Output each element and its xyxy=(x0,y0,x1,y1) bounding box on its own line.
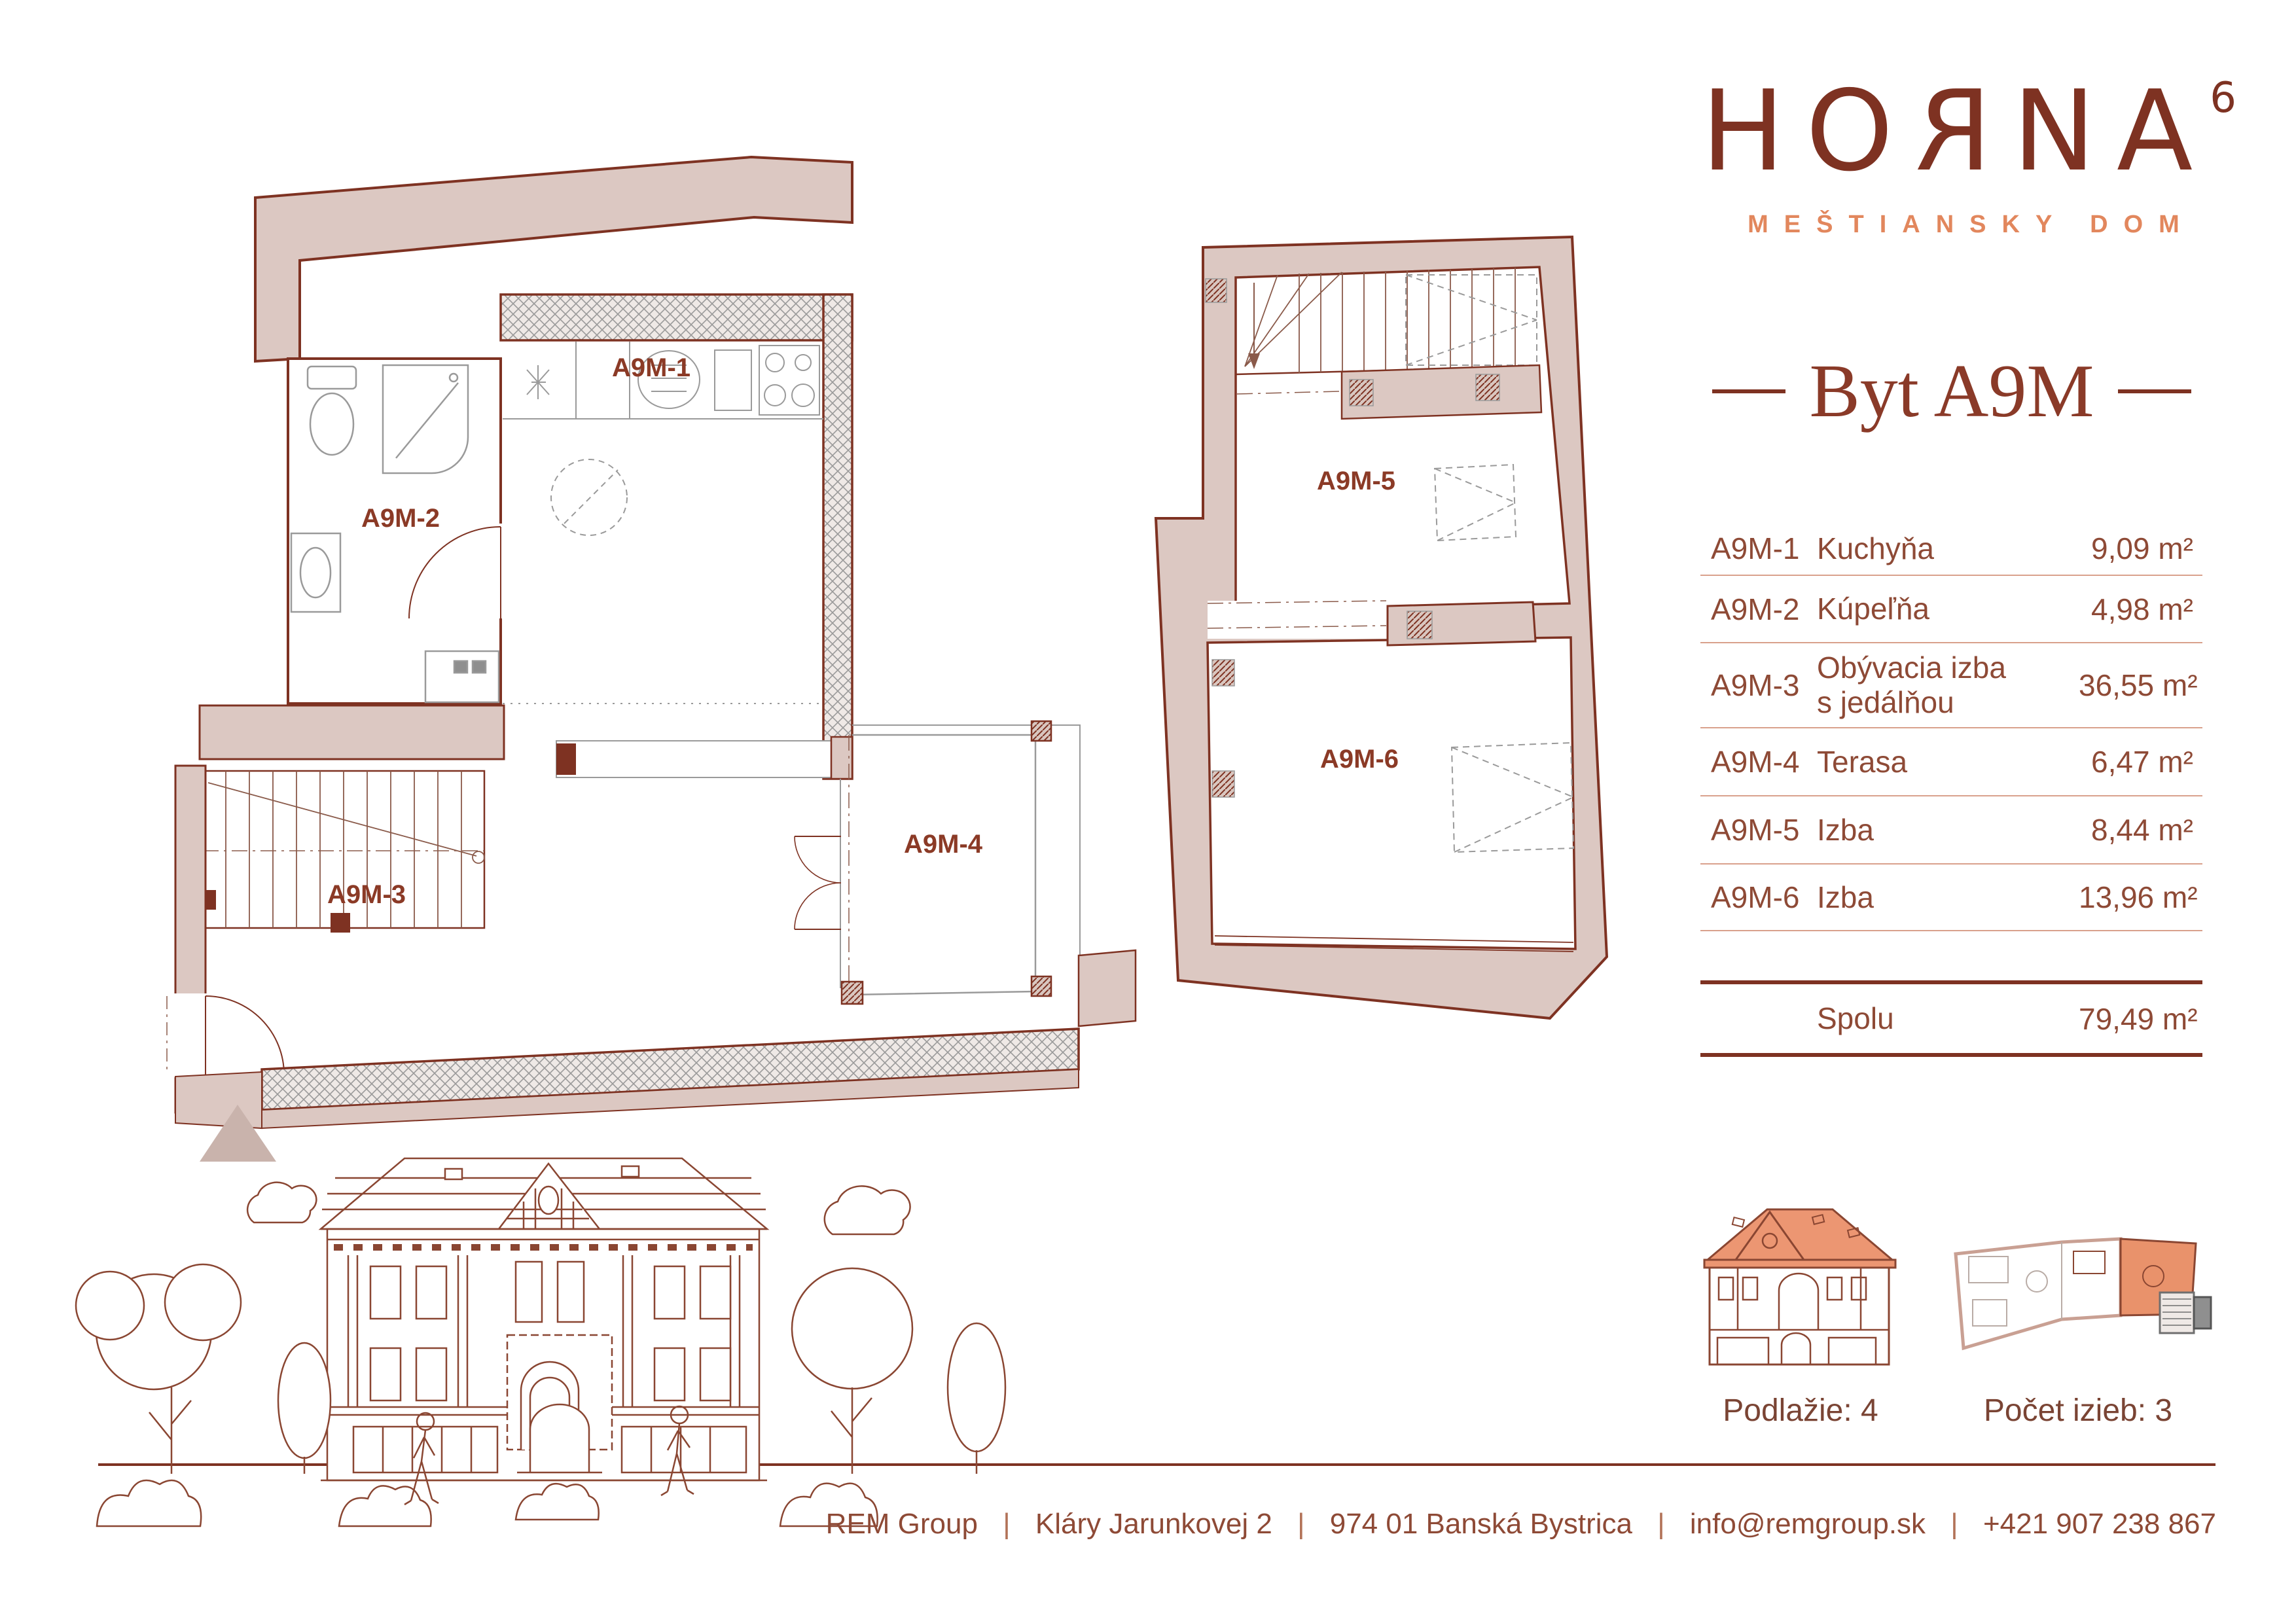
room-label-a9m1: A9M-1 xyxy=(612,353,691,382)
logo-letter: O xyxy=(1806,76,1893,187)
footer-separator: | xyxy=(1657,1508,1664,1540)
room-name: Terasa xyxy=(1817,745,2079,779)
floor-plan-main: A9M-1 A9M-2 A9M-3 A9M-4 xyxy=(167,157,1136,1162)
building-illustration xyxy=(76,1158,1005,1526)
kitchen-fixtures xyxy=(503,342,823,704)
room-label-a9m5: A9M-5 xyxy=(1317,467,1395,495)
footer-contact: REM Group | Kláry Jarunkovej 2 | 974 01 … xyxy=(826,1508,2216,1541)
room-area: 13,96 m² xyxy=(2079,880,2207,915)
bathroom-fixtures xyxy=(291,365,499,702)
brochure-page: A9M-1 A9M-2 A9M-3 A9M-4 xyxy=(0,0,2296,1623)
brand-logo: H O R N A 6 MEŠTIANSKY DOM xyxy=(1702,76,2225,239)
table-row: A9M-6 Izba 13,96 m² xyxy=(1700,865,2202,931)
unit-position-icon xyxy=(1956,1239,2211,1348)
logo-letter: N xyxy=(2013,76,2096,187)
footer-city: 974 01 Banská Bystrica xyxy=(1330,1508,1632,1540)
room-area: 6,47 m² xyxy=(2079,744,2202,779)
terrace xyxy=(795,721,1136,1026)
staircase-upper xyxy=(1236,268,1541,419)
logo-subtitle: MEŠTIANSKY DOM xyxy=(1702,211,2225,239)
staircase-main xyxy=(196,771,484,933)
floor-location-icon xyxy=(1704,1209,1895,1364)
room-area: 4,98 m² xyxy=(2079,592,2202,627)
footer-separator: | xyxy=(1003,1508,1010,1540)
footer-email[interactable]: info@remgroup.sk xyxy=(1690,1508,1926,1540)
room-name: Kúpeľňa xyxy=(1817,592,2079,626)
room-code: A9M-2 xyxy=(1700,592,1817,627)
room-area-table: A9M-1 Kuchyňa 9,09 m² A9M-2 Kúpeľňa 4,98… xyxy=(1700,522,2202,1057)
total-label: Spolu xyxy=(1817,1001,2079,1036)
room-name: Kuchyňa xyxy=(1817,531,2079,566)
room-area: 36,55 m² xyxy=(2079,668,2207,703)
table-total-row: Spolu 79,49 m² xyxy=(1700,980,2202,1057)
footer-company: REM Group xyxy=(826,1508,978,1540)
total-area: 79,49 m² xyxy=(2079,1001,2207,1037)
room-label-a9m3: A9M-3 xyxy=(327,880,406,909)
title-dash-right xyxy=(2118,389,2191,393)
footer-separator: | xyxy=(1950,1508,1958,1540)
logo-number-badge: 6 xyxy=(2210,77,2236,119)
room-area: 9,09 m² xyxy=(2079,531,2202,566)
table-spacer xyxy=(1700,931,2202,980)
table-row: A9M-5 Izba 8,44 m² xyxy=(1700,796,2202,865)
room-code: A9M-1 xyxy=(1700,531,1817,566)
footer-separator: | xyxy=(1297,1508,1304,1540)
room-label-a9m6: A9M-6 xyxy=(1320,745,1399,774)
room-code: A9M-4 xyxy=(1700,744,1817,779)
room-name: Izba xyxy=(1817,880,2079,915)
rooms-caption: Počet izieb: 3 xyxy=(1947,1393,2209,1429)
floor-plan-upper: A9M-5 A9M-6 xyxy=(1156,237,1607,1018)
footer-street: Kláry Jarunkovej 2 xyxy=(1035,1508,1272,1540)
room-area: 8,44 m² xyxy=(2079,812,2202,847)
logo-letter: A xyxy=(2117,76,2193,187)
room-label-a9m4: A9M-4 xyxy=(904,830,983,859)
logo-letter: H xyxy=(1701,76,1785,187)
unit-title-row: Byt A9M xyxy=(1700,353,2203,429)
pedestrians xyxy=(404,1406,694,1505)
room-label-a9m2: A9M-2 xyxy=(361,504,440,533)
table-row: A9M-2 Kúpeľňa 4,98 m² xyxy=(1700,576,2202,643)
floor-caption: Podlažie: 4 xyxy=(1693,1393,1909,1429)
room-name: Izba xyxy=(1817,813,2079,847)
room-code: A9M-5 xyxy=(1700,812,1817,847)
table-row: A9M-4 Terasa 6,47 m² xyxy=(1700,728,2202,796)
room-code: A9M-3 xyxy=(1700,668,1817,703)
brand-wordmark: H O R N A 6 xyxy=(1702,76,2225,187)
room-code: A9M-6 xyxy=(1700,880,1817,915)
title-dash-left xyxy=(1712,389,1785,393)
room-name: Obývacia izba s jedálňou xyxy=(1817,651,2079,720)
orientation-triangle xyxy=(200,1105,276,1162)
footer-phone[interactable]: +421 907 238 867 xyxy=(1983,1508,2216,1540)
logo-letter-mirrored: R xyxy=(1914,76,1992,187)
table-row: A9M-3 Obývacia izba s jedálňou 36,55 m² xyxy=(1700,643,2202,728)
page-title: Byt A9M xyxy=(1809,353,2094,429)
table-row: A9M-1 Kuchyňa 9,09 m² xyxy=(1700,522,2202,576)
